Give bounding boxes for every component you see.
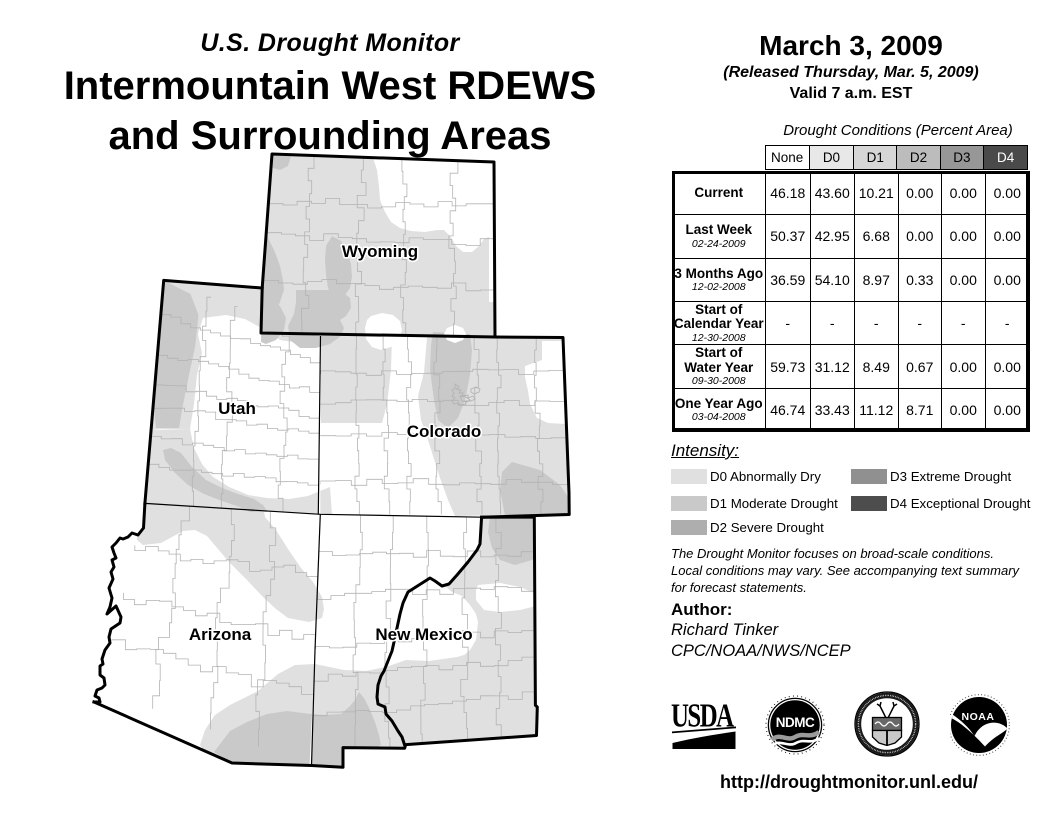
svg-text:Colorado: Colorado xyxy=(407,422,482,441)
svg-text:Utah: Utah xyxy=(218,399,256,418)
svg-text:New Mexico: New Mexico xyxy=(375,625,472,644)
svg-text:NDMC: NDMC xyxy=(776,715,815,730)
svg-text:NOAA: NOAA xyxy=(962,711,995,723)
svg-text:Arizona: Arizona xyxy=(189,625,252,644)
svg-text:Wyoming: Wyoming xyxy=(342,242,418,261)
